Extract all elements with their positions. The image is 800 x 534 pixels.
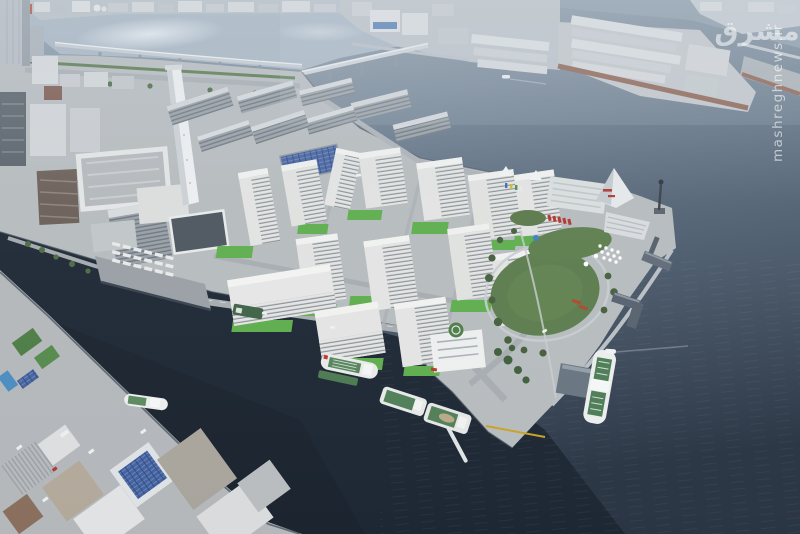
aerial-photo: مشرق mashreghnews.ir [0, 0, 800, 534]
watermark-text: mashreghnews.ir [770, 23, 786, 162]
watermark-logo: مشرق [714, 16, 799, 47]
aerial-photo-canvas: مشرق mashreghnews.ir [0, 0, 800, 534]
